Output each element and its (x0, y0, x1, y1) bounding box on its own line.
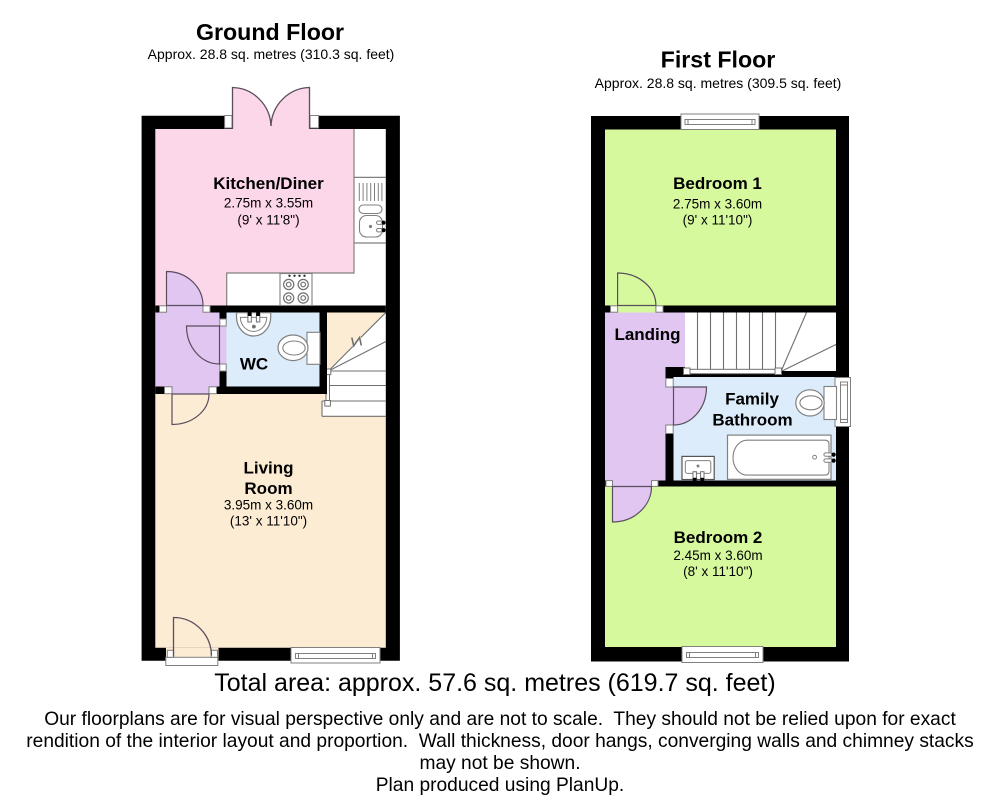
svg-text:Total area: approx. 57.6 sq. m: Total area: approx. 57.6 sq. metres (619… (214, 669, 775, 697)
svg-text:Our floorplans are for visual: Our floorplans are for visual perspectiv… (44, 709, 956, 730)
svg-text:(13' x 11'10"): (13' x 11'10") (230, 514, 307, 529)
svg-text:Family: Family (725, 390, 779, 409)
svg-text:Approx. 28.8 sq. metres (309.5: Approx. 28.8 sq. metres (309.5 sq. feet) (595, 75, 842, 91)
svg-text:3.95m x 3.60m: 3.95m x 3.60m (224, 498, 313, 513)
svg-text:Landing: Landing (614, 325, 680, 344)
svg-text:WC: WC (240, 355, 268, 374)
svg-text:Bedroom 1: Bedroom 1 (673, 174, 762, 193)
svg-text:Bedroom 2: Bedroom 2 (674, 528, 763, 547)
svg-text:Room: Room (244, 479, 292, 498)
svg-text:First Floor: First Floor (661, 47, 776, 73)
svg-text:Bathroom: Bathroom (712, 411, 792, 430)
svg-text:Plan produced using PlanUp.: Plan produced using PlanUp. (376, 775, 625, 796)
svg-text:2.75m x 3.55m: 2.75m x 3.55m (224, 196, 313, 211)
svg-text:Approx. 28.8 sq. metres (310.3: Approx. 28.8 sq. metres (310.3 sq. feet) (148, 46, 395, 62)
svg-text:Living: Living (243, 459, 293, 478)
svg-text:rendition of the interior layo: rendition of the interior layout and pro… (26, 731, 973, 752)
svg-text:(8' x 11'10"): (8' x 11'10") (683, 564, 753, 579)
svg-text:Ground Floor: Ground Floor (196, 19, 344, 45)
svg-text:Kitchen/Diner: Kitchen/Diner (213, 174, 324, 193)
svg-text:(9' x 11'10"): (9' x 11'10") (683, 213, 753, 228)
svg-text:(9' x 11'8"): (9' x 11'8") (237, 213, 299, 228)
svg-text:2.75m x 3.60m: 2.75m x 3.60m (673, 197, 762, 212)
svg-text:may not be shown.: may not be shown. (419, 753, 580, 774)
svg-text:2.45m x 3.60m: 2.45m x 3.60m (673, 548, 762, 563)
